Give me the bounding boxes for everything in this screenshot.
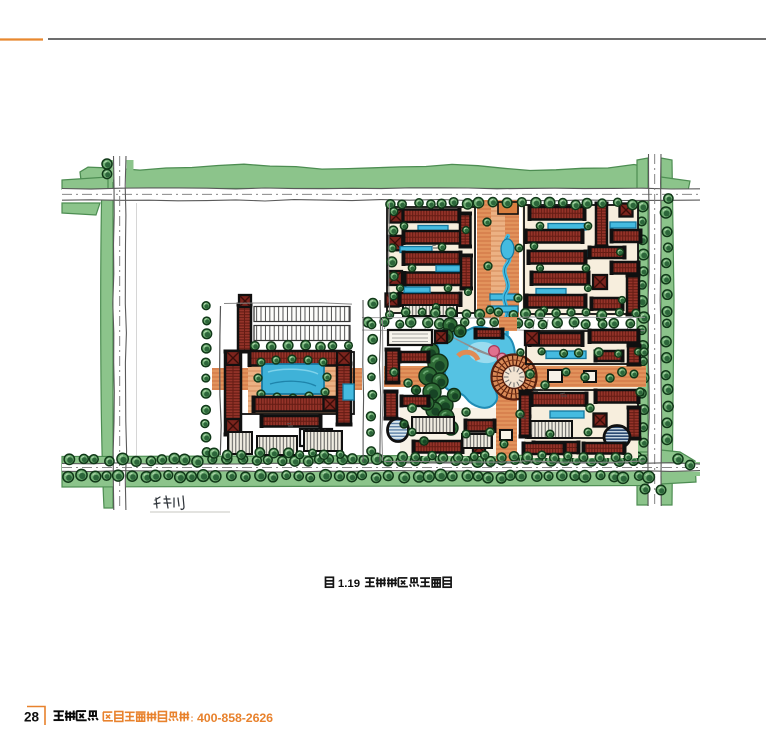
svg-text:28: 28 [24, 710, 40, 725]
svg-text::: : [191, 714, 194, 724]
svg-text:1.19: 1.19 [338, 578, 360, 590]
svg-text:400-858-2626: 400-858-2626 [197, 711, 273, 725]
